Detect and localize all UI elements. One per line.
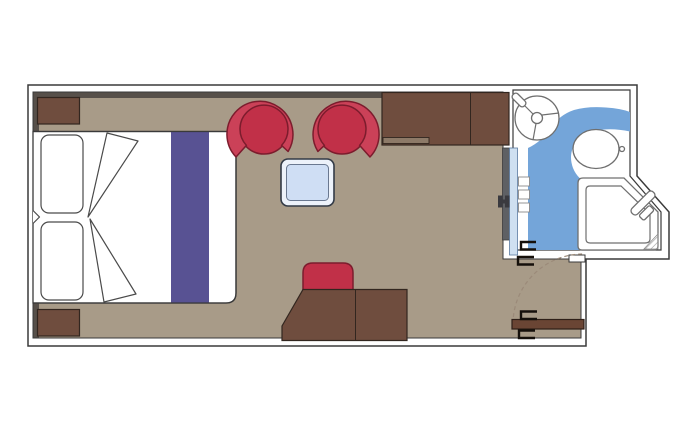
track-slat <box>519 177 530 186</box>
door-stop <box>569 255 585 262</box>
double-bed <box>33 132 236 304</box>
floor-plan-page <box>0 0 700 433</box>
track-slat <box>519 203 530 212</box>
nightstand-bottom <box>38 310 80 337</box>
wardrobe-shelf-lip <box>383 138 429 144</box>
wardrobe <box>382 93 509 146</box>
sliding-door-glass <box>510 148 518 255</box>
bathroom-door-track <box>519 177 530 212</box>
pillow-left-top <box>41 135 83 213</box>
bed-runner <box>171 132 209 304</box>
stool <box>303 263 353 290</box>
flush-button <box>620 147 625 152</box>
sliding-door-panel <box>503 148 510 240</box>
table-inset <box>287 165 329 201</box>
sink-drain <box>532 113 543 124</box>
bathroom <box>511 90 663 250</box>
shower <box>578 178 663 250</box>
toilet-bowl <box>573 130 619 169</box>
coffee-table <box>281 159 334 206</box>
entry-door-leaf <box>512 320 584 330</box>
desk-top <box>282 290 407 341</box>
floor-plan-svg <box>0 0 700 433</box>
pillow-left-bottom <box>41 222 83 300</box>
desk <box>282 290 407 341</box>
track-slat <box>519 190 530 199</box>
nightstand-top <box>38 98 80 125</box>
